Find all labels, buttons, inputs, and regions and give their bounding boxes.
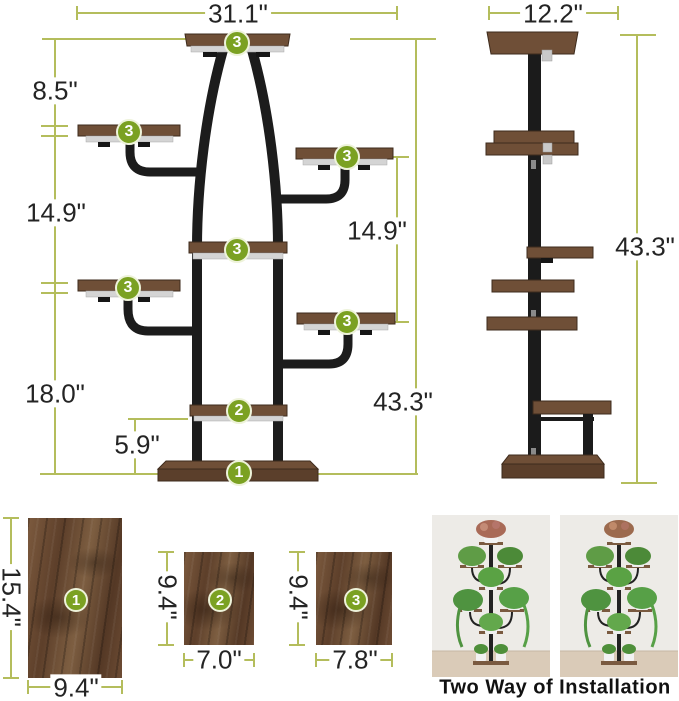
- badge-lower-left-shelf: 3: [115, 275, 141, 301]
- dim-tick: [183, 653, 185, 667]
- product-dimension-diagram: 31.1" 8.5" 14.9" 18.0" 5.9" 14.9" 43.3" …: [0, 0, 679, 701]
- panel-3-width-label: 7.8": [329, 646, 380, 673]
- dim-ext-top: [42, 38, 188, 40]
- side-view-stand: [486, 32, 611, 478]
- panel-2-badge: 2: [208, 588, 232, 612]
- dim-tick: [41, 125, 68, 127]
- badge-upper-left-shelf: 3: [116, 119, 142, 145]
- dim-tick: [396, 6, 398, 20]
- dim-tick: [41, 135, 68, 137]
- installation-photo-1: [432, 515, 550, 677]
- dim-tick: [76, 6, 78, 20]
- dim-tick: [158, 644, 174, 646]
- badge-middle-shelf: 3: [224, 237, 250, 263]
- dim-tick: [391, 653, 393, 667]
- gap-left-bottom-label: 18.0": [22, 380, 88, 407]
- gap-top-label: 8.5": [29, 77, 80, 104]
- front-height-label: 43.3": [370, 388, 436, 415]
- dim-tick: [617, 6, 619, 20]
- dim-tick: [620, 34, 656, 36]
- dim-tick: [253, 653, 255, 667]
- dim-tick: [121, 680, 123, 694]
- panel-2-height-label: 9.4": [153, 571, 180, 622]
- badge-second-shelf: 2: [226, 398, 252, 424]
- badge-top-shelf: 3: [224, 30, 250, 56]
- installation-caption: Two Way of Installation: [439, 677, 671, 700]
- dim-tick: [289, 644, 305, 646]
- dim-tick: [27, 680, 29, 694]
- panel-1-badge: 1: [64, 588, 88, 612]
- panel-3-badge: 3: [344, 588, 368, 612]
- panel-3-height-label: 9.4": [284, 571, 311, 622]
- dim-tick: [41, 282, 68, 284]
- badge-upper-right-shelf: 3: [334, 144, 360, 170]
- dim-tick: [3, 677, 19, 679]
- dim-ext-height: [350, 38, 436, 40]
- dim-tick: [385, 321, 409, 323]
- dim-tick: [621, 482, 657, 484]
- panel-2-width-label: 7.0": [193, 646, 244, 673]
- dim-tick: [289, 551, 305, 553]
- shelf2-height-label: 5.9": [111, 431, 162, 458]
- dim-tick: [3, 517, 19, 519]
- badge-base-shelf: 1: [226, 460, 252, 486]
- panel-1-height-label: 15.4": [0, 564, 25, 630]
- dim-ext-shelf2: [128, 418, 188, 420]
- front-width-label: 31.1": [205, 0, 271, 27]
- side-width-label: 12.2": [520, 0, 586, 27]
- side-height-label: 43.3": [612, 233, 678, 260]
- installation-photo-2: [560, 515, 678, 677]
- gap-right-label: 14.9": [344, 217, 410, 244]
- gap-left-mid-label: 14.9": [23, 199, 89, 226]
- dim-tick: [41, 292, 68, 294]
- badge-lower-right-shelf: 3: [334, 309, 360, 335]
- dim-tick: [315, 653, 317, 667]
- dim-tick: [488, 6, 490, 20]
- dim-tick: [158, 551, 174, 553]
- panel-1-width-label: 9.4": [50, 674, 101, 701]
- dim-tick: [385, 156, 409, 158]
